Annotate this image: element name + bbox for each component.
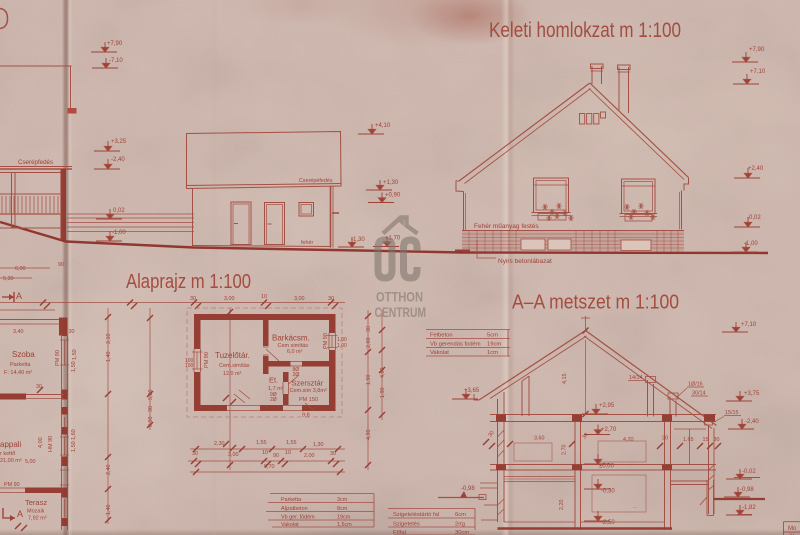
svg-text:±0,00: ±0,00 [599,464,615,470]
svg-text:1,00: 1,00 [337,343,347,349]
svg-text:A: A [17,509,23,519]
svg-text:2,10: 2,10 [106,334,112,345]
svg-text:Vakolat: Vakolat [281,522,299,528]
svg-text:3,00: 3,00 [228,452,239,458]
svg-text:19cm: 19cm [487,342,501,348]
svg-text:1,50: 1,50 [71,361,77,372]
svg-text:30: 30 [148,406,154,412]
svg-text:14/14: 14/14 [629,375,643,381]
svg-text:1,50: 1,50 [72,349,78,360]
svg-text:+1,30: +1,30 [383,180,399,186]
svg-text:Barkácsm.: Barkácsm. [272,334,310,343]
svg-text:+2,95: +2,95 [599,403,615,409]
svg-text:+0,90: +0,90 [385,193,401,199]
svg-text:Vakolat: Vakolat [430,350,449,356]
svg-text:-1,00: -1,00 [112,230,126,236]
svg-text:appali: appali [0,440,22,449]
svg-text:30: 30 [192,451,198,457]
svg-text:fehér: fehér [301,240,313,246]
svg-text:5,20: 5,20 [148,390,154,401]
svg-text:4,30: 4,30 [366,430,372,441]
svg-text:15: 15 [703,437,709,443]
svg-text:30/14: 30/14 [692,391,706,397]
svg-text:r kettő: r kettő [0,451,15,457]
svg-text:Nyirs betonlábazat: Nyirs betonlábazat [498,258,552,265]
svg-text:PM 90: PM 90 [4,482,20,488]
svg-text:Szigetelés: Szigetelés [393,522,420,528]
svg-text:+3,75: +3,75 [744,391,760,397]
svg-text:Parketta: Parketta [281,497,301,503]
svg-text:Vb gerendás fodém: Vb gerendás fodém [430,342,481,348]
svg-text:1cm: 1cm [487,350,498,356]
svg-text:-1,30: -1,30 [351,237,365,243]
svg-text:Vb ger. födém: Vb ger. födém [281,515,315,521]
svg-text:5,00: 5,00 [25,459,36,465]
svg-text:PM 90: PM 90 [55,350,61,366]
svg-text:-1,82: -1,82 [742,505,756,511]
svg-text:90: 90 [273,453,279,459]
svg-text:2,00: 2,00 [366,338,372,349]
svg-text:Parketta: Parketta [10,362,31,368]
svg-text:Tuzelőtár.: Tuzelőtár. [215,351,250,360]
svg-text:1,40: 1,40 [106,352,112,363]
svg-text:OTTHON: OTTHON [376,290,423,305]
svg-text:6,70: 6,70 [264,464,275,470]
svg-text:-7,10: -7,10 [109,58,123,64]
svg-text:+2,70: +2,70 [601,427,617,433]
svg-text:Szoba: Szoba [12,350,35,359]
svg-text:30: 30 [36,384,42,390]
svg-text:5,30: 5,30 [3,276,14,282]
svg-text:2,00: 2,00 [304,453,315,459]
svg-text:3cm: 3cm [337,497,348,503]
svg-text:Fehér műanyag festés: Fehér műanyag festés [474,223,539,230]
svg-text:4,15: 4,15 [562,374,568,385]
svg-text:Cem.sim 3,8m²: Cem.sim 3,8m² [290,388,327,394]
svg-text:+4,10: +4,10 [375,123,391,129]
svg-text:30: 30 [714,437,720,443]
svg-text:6,0 m²: 6,0 m² [287,349,302,355]
svg-text:-2,40: -2,40 [111,157,125,163]
svg-text:1,30: 1,30 [313,442,324,448]
svg-text:4,20: 4,20 [623,437,634,443]
svg-text:Keleti homlokzat m 1:100: Keleti homlokzat m 1:100 [489,19,681,42]
svg-text:Alaprajz m 1:100: Alaprajz m 1:100 [126,271,251,293]
svg-text:A: A [16,291,22,301]
svg-text:Terasz: Terasz [25,498,47,507]
svg-text:21,00 m²: 21,00 m² [0,458,22,464]
svg-text:0,02: 0,02 [113,208,125,214]
svg-text:+7,90: +7,90 [107,41,123,47]
svg-text:30: 30 [662,436,668,442]
svg-text:-2,50: -2,50 [601,520,615,526]
svg-text:Aljzatbeton: Aljzatbeton [281,506,308,512]
svg-text:100: 100 [185,363,194,369]
svg-text:5cm: 5cm [487,333,498,339]
svg-text:10: 10 [285,450,291,456]
svg-text:+2,40: +2,40 [748,166,764,172]
svg-text:Szigeteléstártó fal: Szigeteléstártó fal [393,512,439,518]
svg-text:PM 90: PM 90 [323,333,329,349]
svg-text:2,30: 2,30 [214,441,225,447]
svg-text:90: 90 [58,262,64,268]
svg-text:6cm: 6cm [455,512,466,518]
svg-text:Cserépfedés: Cserépfedés [18,159,53,166]
svg-text:HM 90: HM 90 [48,436,54,452]
svg-text:15/15: 15/15 [725,410,739,416]
svg-text:1Ø/16: 1Ø/16 [688,382,703,388]
svg-text:Mo: Mo [788,526,797,532]
svg-text:PM 90: PM 90 [204,352,210,368]
svg-text:10: 10 [261,294,267,300]
svg-text:Felbeton: Felbeton [430,333,453,339]
svg-text:A–A metszet m 1:100: A–A metszet m 1:100 [512,292,679,314]
svg-text:Cem.simítás: Cem.simítás [219,363,250,369]
svg-text:30: 30 [366,326,372,332]
svg-text:4,00: 4,00 [38,437,44,448]
svg-text:F: 14,40 m²: F: 14,40 m² [4,370,32,376]
svg-text:CENTRUM: CENTRUM [375,305,427,320]
svg-text:+7,10: +7,10 [750,69,766,75]
svg-text:6,00: 6,00 [15,266,26,272]
svg-text:3,00: 3,00 [224,296,235,302]
svg-text:19cm: 19cm [337,515,351,521]
svg-text:30: 30 [581,432,589,440]
svg-text:1,90: 1,90 [366,375,372,386]
svg-text:-0,02: -0,02 [742,469,756,475]
svg-text:Főfal: Főfal [393,530,406,535]
svg-text:30: 30 [487,430,495,438]
svg-text:+7,90: +7,90 [749,47,765,53]
svg-text:-1,00: -1,00 [744,241,758,247]
svg-text:-0,98: -0,98 [461,486,475,492]
svg-text:2Ø: 2Ø [293,372,300,378]
svg-text:30: 30 [330,451,336,457]
svg-text:+7,10: +7,10 [741,322,757,328]
svg-text:-2,40: -2,40 [745,419,759,425]
svg-text:30cm: 30cm [455,530,469,535]
svg-text:PM 150: PM 150 [299,397,318,403]
svg-text:Mozaik: Mozaik [27,509,45,515]
svg-text:-0,98: -0,98 [740,487,754,493]
svg-text:1,55: 1,55 [286,440,297,446]
svg-text:2rtg: 2rtg [455,522,465,528]
svg-text:1,40: 1,40 [106,505,112,516]
svg-text:3,60: 3,60 [534,436,545,442]
svg-text:3,40: 3,40 [13,329,24,335]
svg-text:1,55: 1,55 [256,440,267,446]
svg-text:2,70: 2,70 [562,445,568,456]
svg-text:30: 30 [69,329,75,335]
svg-text:9;8: 9;8 [302,413,310,419]
svg-text:Et.: Et. [269,376,278,385]
svg-text:2,20: 2,20 [559,500,565,511]
svg-text:..: .. [633,503,637,510]
svg-text:-0,30: -0,30 [601,489,615,495]
svg-text:7,92 m²: 7,92 m² [28,516,47,522]
svg-text:1,50: 1,50 [71,441,77,452]
svg-text:Cserépéfedés: Cserépéfedés [299,178,333,184]
svg-text:1,60: 1,60 [71,429,77,440]
svg-text:1,65: 1,65 [683,437,694,443]
svg-text:-0,02: -0,02 [747,215,761,221]
svg-text:+3,25: +3,25 [111,139,127,145]
svg-text:1,90: 1,90 [380,388,386,399]
svg-text:8,00: 8,00 [148,417,154,428]
svg-text:+3,65: +3,65 [464,388,480,394]
svg-text:2Ø: 2Ø [270,397,277,403]
svg-text:1,5cm: 1,5cm [337,522,352,528]
svg-text:Szersztár: Szersztár [292,379,324,388]
svg-text:10: 10 [262,450,268,456]
svg-text:2,40: 2,40 [106,465,112,476]
svg-text:8cm: 8cm [337,506,348,512]
svg-text:12,0 m²: 12,0 m² [223,371,241,377]
svg-text:4,60: 4,60 [380,368,386,379]
svg-text:3,00: 3,00 [294,296,305,302]
